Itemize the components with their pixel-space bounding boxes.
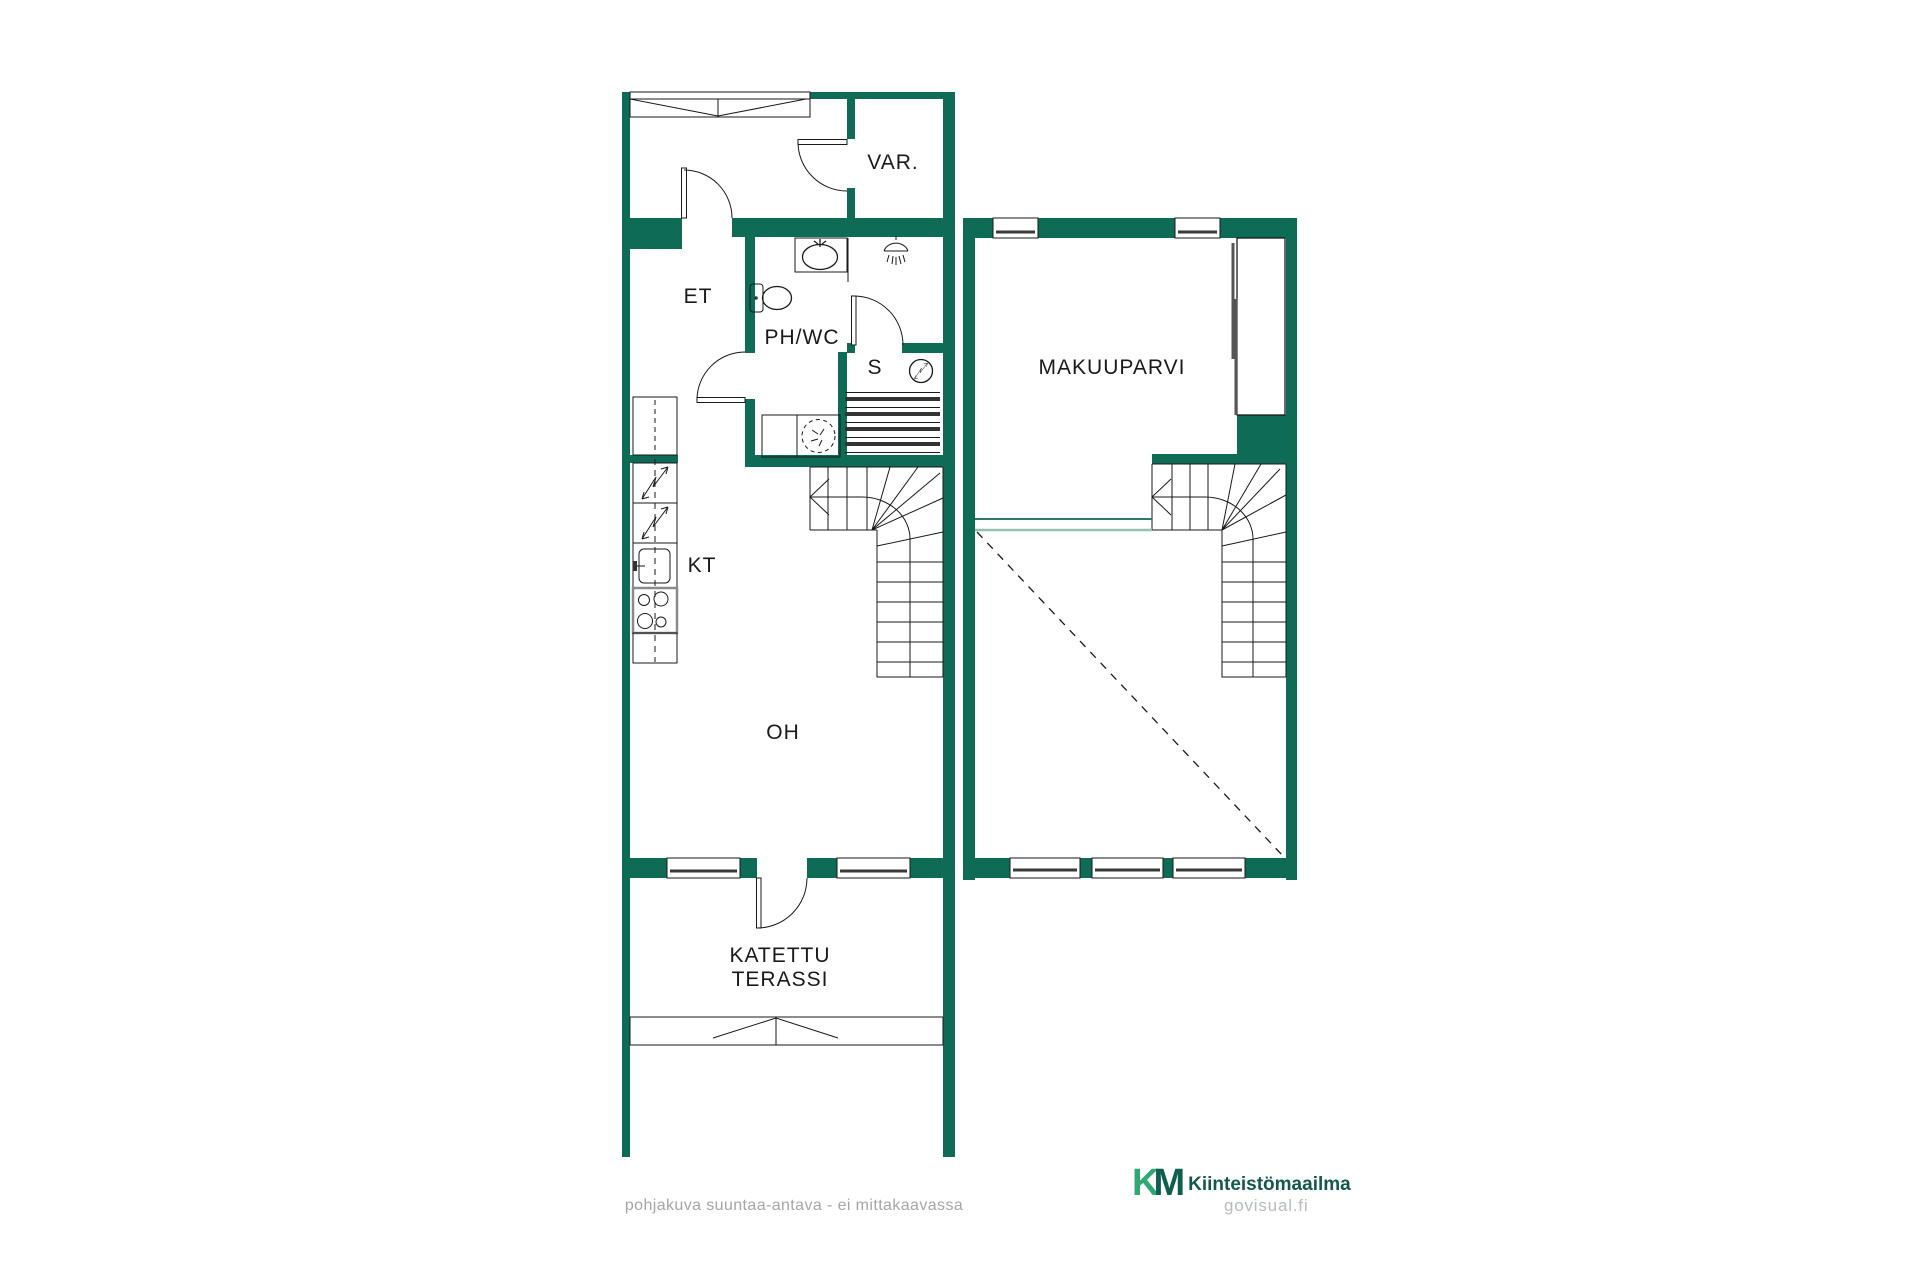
sauna-fixtures (845, 360, 940, 453)
room-label-entry: ET (684, 285, 713, 309)
disclaimer-text: pohjakuva suuntaa-antava - ei mittakaava… (625, 1197, 963, 1215)
washer-reservation-icon (762, 415, 840, 457)
loft-details (975, 238, 1285, 856)
electric-heater-icon (910, 360, 933, 383)
kitchen-fixtures (633, 397, 677, 663)
floorplan-drawing (0, 0, 1920, 1280)
room-label-loft: MAKUUPARVI (1039, 356, 1186, 380)
room-label-storage: VAR. (867, 151, 918, 175)
stair-direction-arrow (810, 497, 910, 677)
floorplan-page: VAR. ET PH/WC S KT OH KATETTU TERASSI MA… (0, 0, 1920, 1280)
stairs-right-unit (1152, 464, 1286, 677)
lightning-icon (642, 507, 668, 539)
walls (622, 92, 1297, 1157)
watermark-text: govisual.fi (1224, 1196, 1308, 1216)
sauna-benches (845, 393, 940, 453)
stairs-left-unit (810, 467, 943, 677)
room-label-terrace: KATETTU TERASSI (720, 944, 840, 992)
toilet-icon (750, 284, 792, 312)
terrace-railing (630, 1017, 943, 1045)
doors (682, 140, 904, 929)
shower-icon (884, 236, 908, 265)
loft-closet (1232, 238, 1286, 415)
open-to-below-diagonal (977, 532, 1283, 856)
room-label-living: OH (766, 721, 800, 745)
top-window-icon (630, 92, 810, 117)
room-label-bathroom: PH/WC (765, 326, 840, 350)
room-label-sauna: S (867, 356, 882, 380)
room-label-kitchen: KT (688, 554, 717, 578)
stair-direction-arrow (1152, 497, 1253, 677)
windows (630, 92, 1245, 878)
basin-icon (795, 238, 848, 282)
brand-mark-m: M (1153, 1162, 1185, 1205)
brand-name: Kiinteistömaailma (1188, 1174, 1351, 1196)
